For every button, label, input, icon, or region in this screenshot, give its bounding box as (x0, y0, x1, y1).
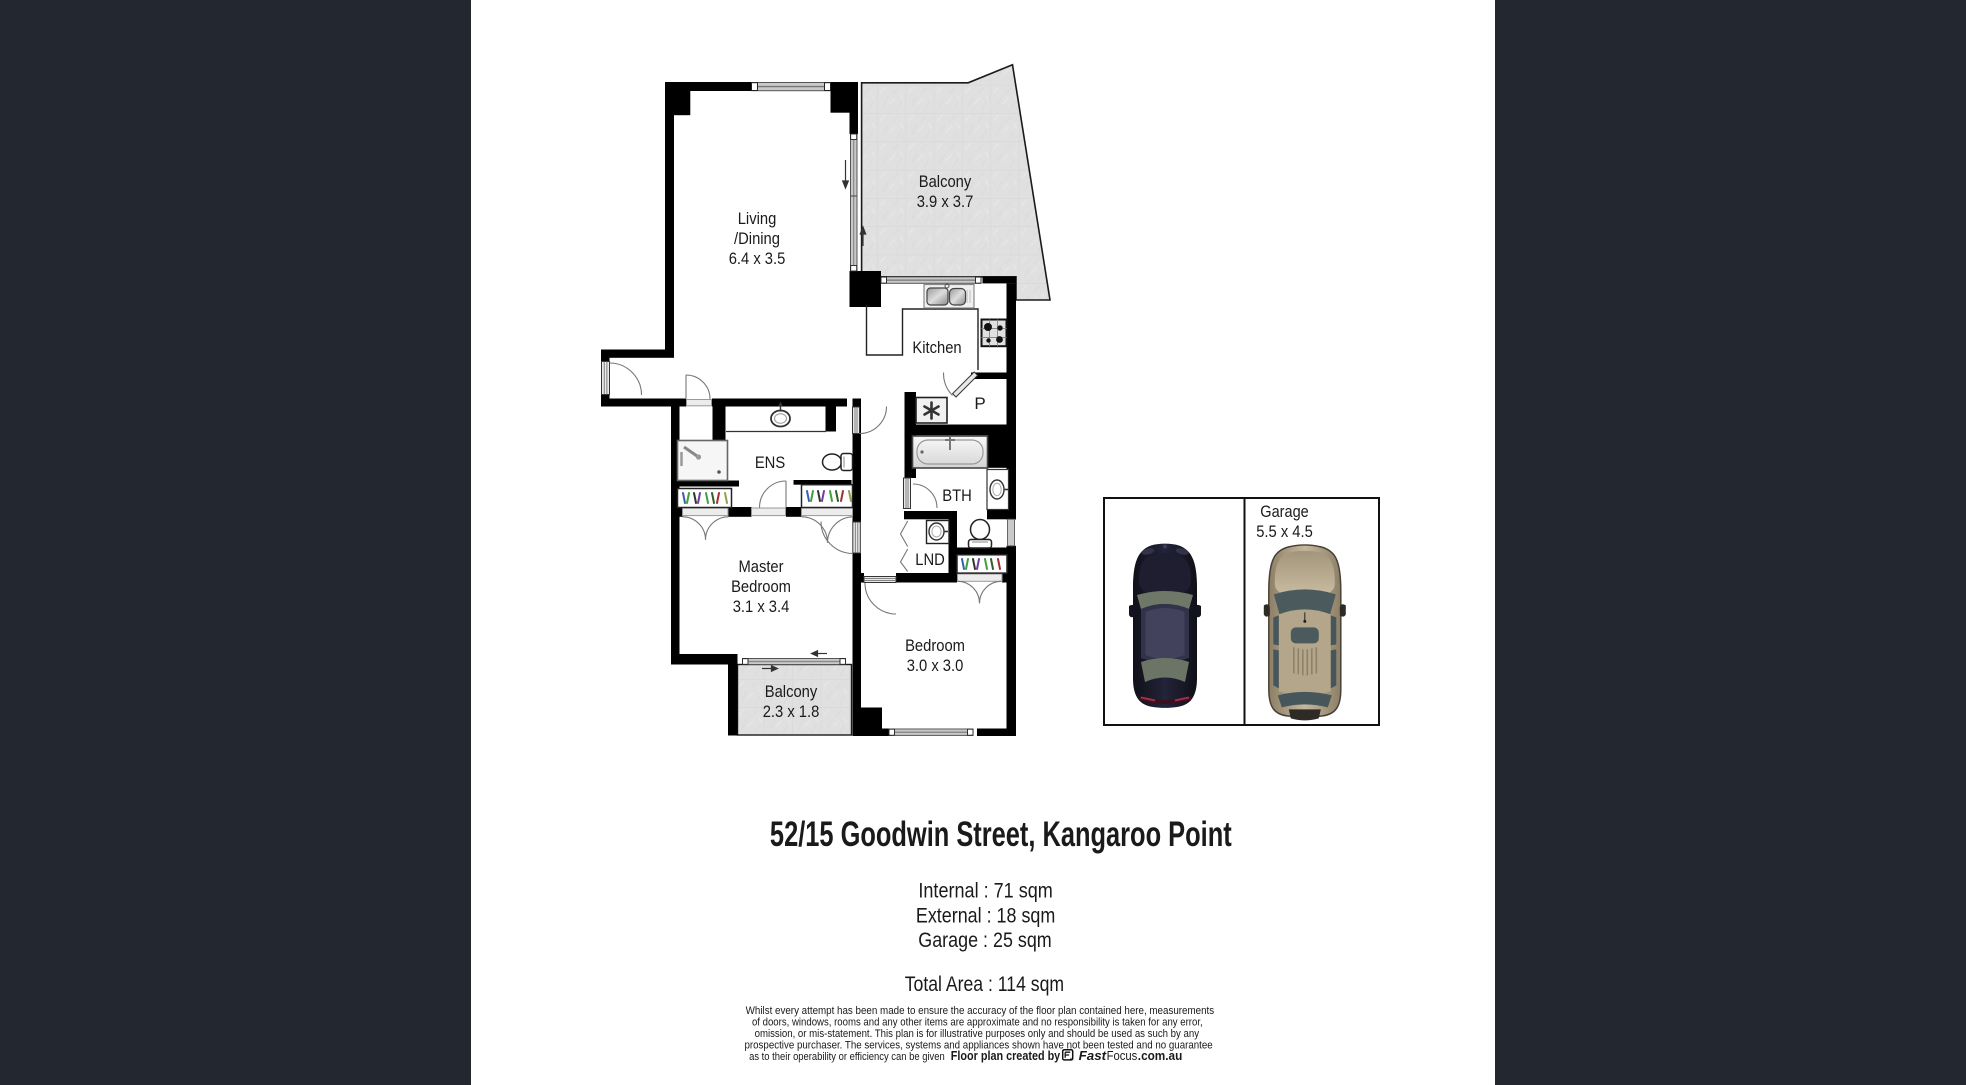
svg-text:Balcony: Balcony (919, 173, 972, 191)
svg-text:Focus: Focus (1107, 1048, 1138, 1063)
svg-text:6.4 x 3.5: 6.4 x 3.5 (729, 250, 786, 268)
svg-text:Master: Master (738, 558, 784, 576)
svg-text:Kitchen: Kitchen (912, 339, 961, 357)
svg-text:Balcony: Balcony (765, 683, 818, 701)
svg-text:Whilst every attempt has been: Whilst every attempt has been made to en… (746, 1006, 1215, 1018)
svg-text:Bedroom: Bedroom (731, 578, 791, 596)
svg-text:External : 18 sqm: External : 18 sqm (916, 904, 1055, 928)
svg-text:Bedroom: Bedroom (905, 637, 965, 655)
svg-text:3.9 x 3.7: 3.9 x 3.7 (917, 193, 974, 211)
svg-text:ENS: ENS (755, 454, 785, 472)
svg-text:Living: Living (738, 210, 777, 228)
svg-text:Internal : 71 sqm: Internal : 71 sqm (918, 879, 1052, 903)
svg-text:52/15 Goodwin Street, Kangaroo: 52/15 Goodwin Street, Kangaroo Point (770, 814, 1232, 854)
svg-text:as to their operability or eff: as to their operability or efficiency ca… (749, 1051, 945, 1063)
svg-text:BTH: BTH (942, 487, 972, 505)
svg-text:LND: LND (915, 551, 945, 569)
svg-text:2.3 x 1.8: 2.3 x 1.8 (763, 703, 820, 721)
svg-text:Garage: Garage (1260, 503, 1309, 521)
svg-text:.com.au: .com.au (1138, 1048, 1183, 1063)
svg-text:3.1 x 3.4: 3.1 x 3.4 (733, 598, 790, 616)
svg-text:of doors, windows, rooms and a: of doors, windows, rooms and any other i… (752, 1017, 1203, 1029)
svg-text:3.0 x 3.0: 3.0 x 3.0 (907, 657, 964, 675)
svg-text:omission, or mis-statement. Th: omission, or mis-statement. This plan is… (755, 1028, 1200, 1040)
svg-text:P: P (974, 394, 985, 413)
svg-text:Total Area : 114 sqm: Total Area : 114 sqm (905, 973, 1064, 997)
svg-text:Fast: Fast (1079, 1048, 1107, 1063)
svg-text:Garage : 25 sqm: Garage : 25 sqm (918, 929, 1051, 953)
svg-text:Floor plan created by: Floor plan created by (951, 1049, 1061, 1063)
svg-text:5.5 x 4.5: 5.5 x 4.5 (1256, 523, 1313, 541)
svg-text:/Dining: /Dining (734, 230, 780, 248)
